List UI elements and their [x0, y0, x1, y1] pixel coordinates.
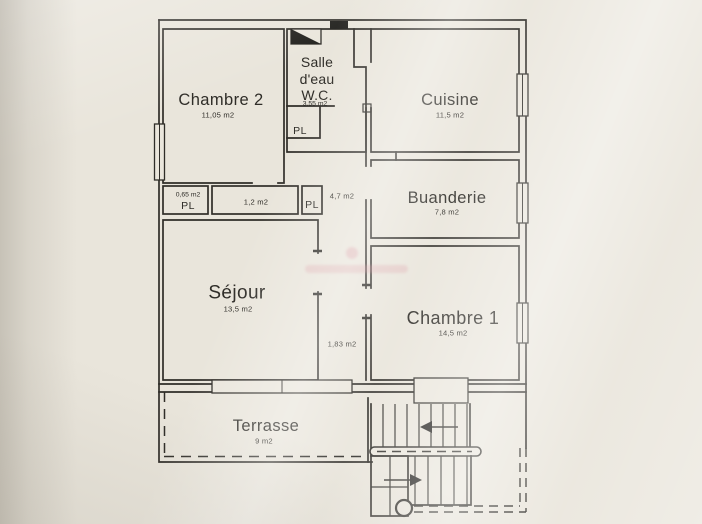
- bay-window-symbol: [212, 380, 352, 393]
- duct-marker: [330, 21, 348, 29]
- corridor-area-1-2: 1,2 m2: [244, 198, 268, 207]
- closet-area-left: 0,65 m2: [176, 192, 201, 199]
- room-area-cuisine: 11,5 m2: [436, 111, 464, 120]
- room-label-buanderie: Buanderie: [408, 189, 487, 207]
- room-label-sejour: Séjour: [208, 283, 266, 304]
- room-area-buanderie: 7,8 m2: [435, 208, 459, 217]
- corridor-area-1-83: 1,83 m2: [328, 340, 357, 349]
- room-label-salle-eau-2: d'eau: [300, 71, 335, 87]
- floor-plan: Chambre 2 11,05 m2 Salle d'eau W.C. 3,55…: [0, 0, 702, 524]
- window-symbol: [155, 124, 165, 180]
- stair-landing-step: [414, 378, 468, 403]
- room-label-terrasse: Terrasse: [233, 417, 299, 435]
- paper-background: [0, 0, 702, 524]
- room-label-cuisine: Cuisine: [421, 91, 479, 109]
- room-area-chambre2: 11,05 m2: [202, 111, 235, 120]
- room-area-sejour: 13,5 m2: [224, 305, 253, 314]
- room-label-salle-eau-1: Salle: [301, 54, 333, 70]
- window-symbol: [517, 303, 528, 343]
- corridor-area-4-7: 4,7 m2: [330, 192, 354, 201]
- closet-label-left: PL: [181, 200, 195, 212]
- stair-newel-post: [396, 500, 412, 516]
- room-area-terrasse: 9 m2: [255, 437, 273, 446]
- window-symbol: [517, 74, 528, 116]
- room-area-salle-eau: 3,55 m2: [303, 101, 328, 108]
- room-label-chambre1: Chambre 1: [407, 308, 500, 328]
- room-label-chambre2: Chambre 2: [178, 91, 263, 109]
- closet-label-salle-eau: PL: [293, 125, 307, 137]
- window-symbol: [517, 183, 528, 223]
- stair-handrail: [370, 447, 481, 456]
- vent-symbol: [291, 29, 321, 44]
- closet-label-right: PL: [305, 199, 319, 211]
- room-area-chambre1: 14,5 m2: [439, 329, 468, 338]
